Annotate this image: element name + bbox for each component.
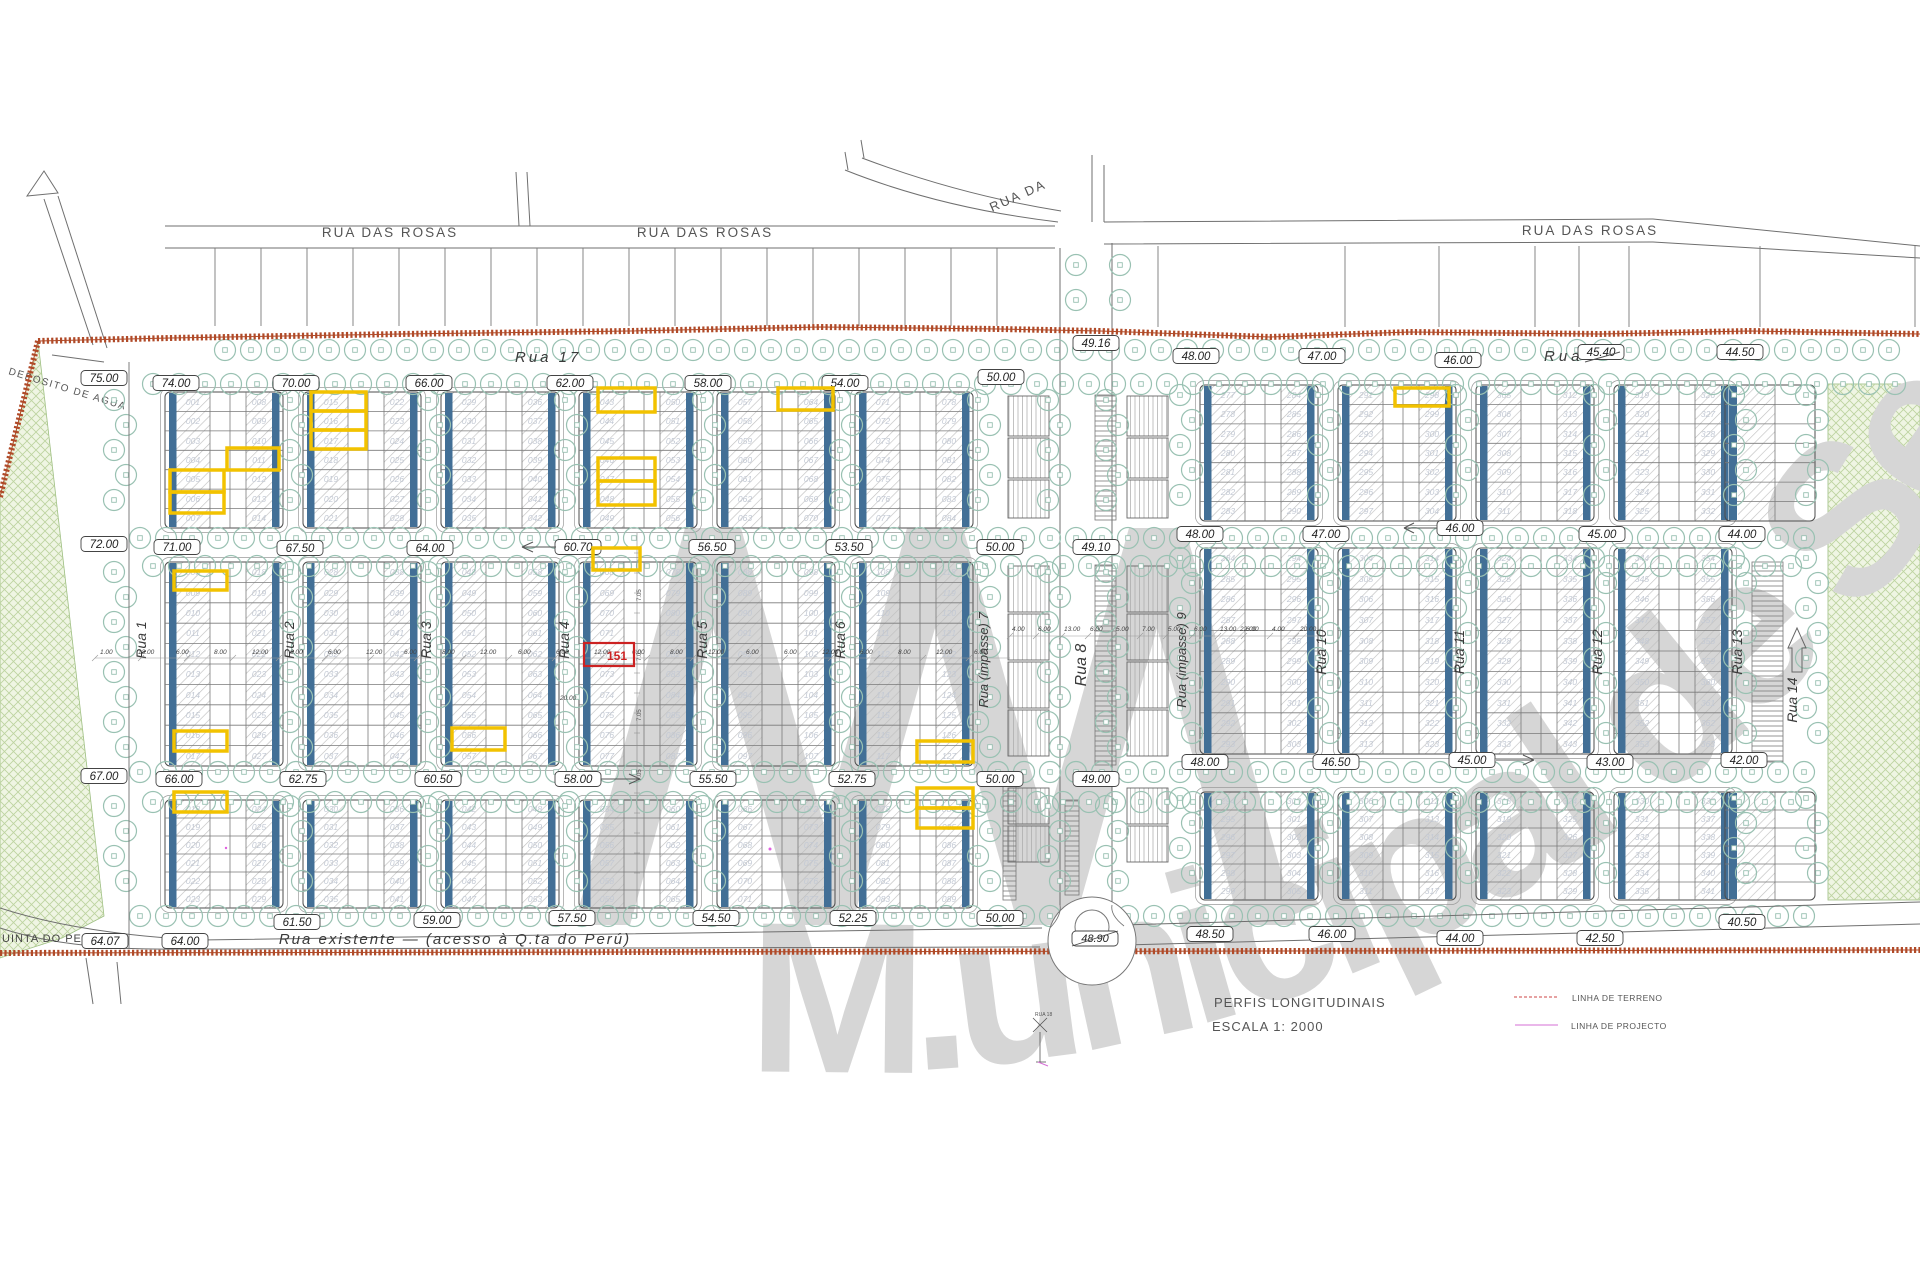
svg-text:111: 111 (877, 628, 890, 638)
svg-text:060: 060 (738, 455, 752, 465)
svg-text:46.50: 46.50 (1322, 757, 1351, 769)
svg-text:096: 096 (738, 730, 752, 740)
svg-text:049: 049 (600, 513, 614, 523)
svg-text:6.00: 6.00 (974, 649, 987, 656)
svg-text:313: 313 (1425, 814, 1439, 824)
svg-text:7.05: 7.05 (637, 769, 643, 781)
svg-text:030: 030 (324, 608, 338, 618)
svg-text:086: 086 (666, 730, 680, 740)
svg-text:RUA DAS ROSAS: RUA DAS ROSAS (637, 225, 773, 240)
svg-text:359: 359 (1701, 656, 1715, 666)
svg-text:286: 286 (1220, 594, 1235, 604)
svg-text:126: 126 (942, 730, 956, 740)
svg-text:323: 323 (1635, 467, 1649, 477)
svg-text:008: 008 (252, 397, 266, 407)
svg-text:329: 329 (1701, 448, 1715, 458)
svg-text:360: 360 (1701, 677, 1715, 687)
svg-text:59.00: 59.00 (423, 915, 452, 927)
svg-text:022: 022 (390, 397, 404, 407)
svg-text:Rua 3: Rua 3 (418, 621, 434, 659)
svg-text:290: 290 (1220, 677, 1235, 687)
svg-text:029: 029 (252, 894, 266, 904)
svg-text:350: 350 (1635, 677, 1649, 687)
svg-text:312: 312 (1359, 718, 1373, 728)
svg-text:294: 294 (1220, 796, 1235, 806)
svg-text:071: 071 (876, 397, 890, 407)
svg-text:329: 329 (1497, 656, 1511, 666)
svg-text:054: 054 (462, 690, 476, 700)
svg-text:303: 303 (1287, 850, 1301, 860)
svg-text:074: 074 (600, 690, 614, 700)
svg-text:321: 321 (1425, 698, 1439, 708)
svg-text:322: 322 (1497, 868, 1511, 878)
svg-text:045: 045 (600, 436, 614, 446)
svg-text:RUA DAS ROSAS: RUA DAS ROSAS (322, 225, 458, 240)
svg-text:53.50: 53.50 (835, 542, 864, 554)
svg-text:322: 322 (1425, 718, 1439, 728)
svg-text:332: 332 (1497, 718, 1511, 728)
svg-text:6.00: 6.00 (290, 649, 303, 656)
svg-text:045: 045 (390, 710, 404, 720)
svg-text:046: 046 (462, 876, 476, 886)
svg-text:317: 317 (1425, 886, 1439, 896)
svg-text:302: 302 (1287, 718, 1301, 728)
svg-text:103: 103 (804, 669, 818, 679)
svg-text:71.00: 71.00 (163, 542, 192, 554)
svg-text:8.00: 8.00 (898, 649, 911, 656)
svg-text:318: 318 (1563, 506, 1577, 516)
svg-text:LINHA DE PROJECTO: LINHA DE PROJECTO (1571, 1021, 1667, 1031)
svg-text:70.00: 70.00 (282, 378, 311, 390)
svg-text:039: 039 (390, 588, 404, 598)
svg-text:305: 305 (1287, 886, 1301, 896)
svg-text:292: 292 (1220, 718, 1235, 728)
svg-text:072: 072 (876, 416, 890, 426)
svg-text:025: 025 (252, 822, 266, 832)
svg-text:056: 056 (462, 730, 476, 740)
svg-text:4.00: 4.00 (1272, 626, 1285, 633)
svg-text:071: 071 (738, 894, 752, 904)
svg-text:062: 062 (666, 840, 680, 850)
svg-text:031: 031 (324, 628, 338, 638)
svg-text:081: 081 (876, 858, 890, 868)
svg-text:058: 058 (738, 416, 752, 426)
svg-text:48.00: 48.00 (1191, 757, 1220, 769)
svg-text:102: 102 (804, 649, 818, 659)
svg-text:003: 003 (186, 436, 200, 446)
svg-text:331: 331 (1635, 814, 1649, 824)
svg-text:335: 335 (1563, 574, 1577, 584)
svg-text:032: 032 (324, 840, 338, 850)
svg-text:338: 338 (1701, 832, 1715, 842)
svg-text:Rua 11: Rua 11 (1451, 630, 1467, 674)
svg-text:314: 314 (1563, 429, 1577, 439)
svg-text:093: 093 (738, 669, 752, 679)
svg-text:341: 341 (1563, 698, 1577, 708)
svg-text:006: 006 (186, 494, 200, 504)
svg-text:4.00: 4.00 (1012, 626, 1025, 633)
svg-text:8.00: 8.00 (670, 649, 683, 656)
svg-text:288: 288 (1220, 636, 1235, 646)
svg-text:048: 048 (600, 494, 614, 504)
svg-text:005: 005 (186, 474, 200, 484)
svg-text:123: 123 (942, 669, 956, 679)
svg-text:54.50: 54.50 (702, 913, 731, 925)
svg-text:035: 035 (324, 894, 338, 904)
svg-text:057: 057 (738, 397, 752, 407)
svg-text:033: 033 (324, 858, 338, 868)
svg-text:083: 083 (942, 494, 956, 504)
svg-text:75.00: 75.00 (90, 373, 119, 385)
svg-text:019: 019 (252, 588, 266, 598)
svg-text:44.00: 44.00 (1446, 933, 1475, 945)
svg-text:349: 349 (1635, 656, 1649, 666)
svg-text:055: 055 (666, 494, 680, 504)
svg-text:119: 119 (942, 588, 956, 598)
svg-text:ESCALA 1: 2000: ESCALA 1: 2000 (1212, 1019, 1324, 1034)
svg-text:303: 303 (1287, 739, 1301, 749)
svg-text:7.00: 7.00 (1142, 626, 1155, 633)
svg-text:015: 015 (324, 397, 338, 407)
svg-text:50.00: 50.00 (987, 372, 1016, 384)
svg-text:059: 059 (528, 588, 542, 598)
svg-text:083: 083 (666, 669, 680, 679)
svg-text:328: 328 (1701, 429, 1715, 439)
svg-text:047: 047 (390, 751, 404, 761)
svg-text:7.05: 7.05 (637, 649, 643, 661)
svg-text:069: 069 (738, 858, 752, 868)
svg-text:042: 042 (390, 649, 404, 659)
svg-text:076: 076 (804, 876, 818, 886)
svg-text:052: 052 (462, 649, 476, 659)
svg-text:308: 308 (1359, 832, 1373, 842)
svg-text:077: 077 (876, 513, 890, 523)
svg-text:309: 309 (1359, 850, 1373, 860)
svg-text:097: 097 (738, 751, 752, 761)
svg-text:12.00: 12.00 (708, 649, 725, 656)
svg-text:026: 026 (252, 730, 266, 740)
svg-text:041: 041 (528, 494, 542, 504)
svg-text:67.00: 67.00 (90, 771, 119, 783)
svg-text:327: 327 (1701, 409, 1715, 419)
svg-text:292: 292 (1358, 409, 1373, 419)
svg-text:056: 056 (666, 513, 680, 523)
svg-text:034: 034 (462, 494, 476, 504)
svg-text:50.00: 50.00 (986, 542, 1015, 554)
svg-text:038: 038 (528, 436, 542, 446)
svg-text:20.00: 20.00 (559, 695, 577, 702)
svg-text:120: 120 (942, 608, 956, 618)
svg-text:293: 293 (1358, 429, 1373, 439)
svg-text:6.00: 6.00 (784, 649, 797, 656)
svg-text:044: 044 (462, 840, 476, 850)
svg-text:068: 068 (804, 474, 818, 484)
svg-text:RUA 18: RUA 18 (1035, 1012, 1052, 1018)
svg-text:302: 302 (1425, 467, 1439, 477)
svg-text:044: 044 (600, 416, 614, 426)
svg-text:101: 101 (804, 628, 818, 638)
svg-text:1.00: 1.00 (100, 649, 113, 656)
svg-text:343: 343 (1563, 739, 1577, 749)
svg-text:RUA DAS ROSAS: RUA DAS ROSAS (1522, 223, 1658, 238)
svg-text:363: 363 (1701, 739, 1715, 749)
svg-text:297: 297 (1286, 615, 1301, 625)
svg-text:320: 320 (1497, 832, 1511, 842)
svg-text:080: 080 (942, 436, 956, 446)
svg-text:327: 327 (1563, 850, 1577, 860)
svg-text:070: 070 (738, 876, 752, 886)
svg-text:330: 330 (1701, 467, 1715, 477)
svg-text:063: 063 (528, 669, 542, 679)
svg-text:107: 107 (804, 751, 818, 761)
svg-text:299: 299 (1220, 886, 1235, 896)
svg-text:315: 315 (1425, 850, 1439, 860)
svg-text:040: 040 (390, 608, 404, 618)
svg-text:318: 318 (1425, 636, 1439, 646)
svg-text:Rua: Rua (1544, 348, 1584, 365)
svg-text:114: 114 (876, 690, 890, 700)
svg-text:009: 009 (252, 416, 266, 426)
svg-text:48.00: 48.00 (1182, 351, 1211, 363)
svg-text:082: 082 (876, 876, 890, 886)
svg-text:308: 308 (1359, 636, 1373, 646)
svg-text:295: 295 (1220, 814, 1235, 824)
svg-text:12.00: 12.00 (480, 649, 497, 656)
svg-text:022: 022 (186, 876, 200, 886)
svg-text:57.50: 57.50 (558, 913, 587, 925)
svg-text:012: 012 (252, 474, 266, 484)
svg-text:348: 348 (1635, 636, 1649, 646)
svg-text:332: 332 (1701, 506, 1715, 516)
svg-text:326: 326 (1563, 832, 1577, 842)
svg-text:307: 307 (1359, 814, 1373, 824)
svg-text:310: 310 (1497, 487, 1511, 497)
svg-text:44.00: 44.00 (1728, 529, 1757, 541)
svg-text:6.00: 6.00 (328, 649, 341, 656)
svg-text:296: 296 (1220, 832, 1235, 842)
svg-text:284: 284 (1286, 390, 1301, 400)
svg-text:065: 065 (804, 416, 818, 426)
svg-text:5.00: 5.00 (1116, 626, 1129, 633)
svg-text:317: 317 (1425, 615, 1439, 625)
svg-text:046: 046 (390, 730, 404, 740)
svg-text:071: 071 (600, 628, 614, 638)
svg-text:035: 035 (462, 513, 476, 523)
svg-text:357: 357 (1701, 615, 1715, 625)
svg-text:336: 336 (1563, 594, 1577, 604)
svg-text:047: 047 (462, 894, 476, 904)
svg-text:033: 033 (324, 669, 338, 679)
svg-text:64.07: 64.07 (91, 936, 120, 948)
svg-text:026: 026 (390, 474, 404, 484)
svg-text:12.00: 12.00 (252, 649, 269, 656)
svg-text:014: 014 (252, 513, 266, 523)
svg-text:345: 345 (1635, 574, 1649, 584)
svg-text:50.00: 50.00 (986, 913, 1015, 925)
svg-text:50.00: 50.00 (986, 774, 1015, 786)
svg-text:6.00: 6.00 (176, 649, 189, 656)
svg-text:6.00: 6.00 (404, 649, 417, 656)
svg-text:325: 325 (1635, 506, 1649, 516)
svg-text:043: 043 (390, 669, 404, 679)
svg-text:073: 073 (600, 669, 614, 679)
svg-text:300: 300 (1287, 677, 1301, 687)
svg-text:105: 105 (804, 710, 818, 720)
svg-text:094: 094 (738, 690, 752, 700)
svg-text:024: 024 (390, 436, 404, 446)
svg-text:026: 026 (252, 840, 266, 850)
svg-text:58.00: 58.00 (564, 774, 593, 786)
svg-text:025: 025 (252, 710, 266, 720)
svg-text:311: 311 (1359, 698, 1373, 708)
svg-text:331: 331 (1701, 487, 1715, 497)
svg-text:013: 013 (186, 669, 200, 679)
svg-text:46.00: 46.00 (1318, 929, 1347, 941)
svg-text:74.00: 74.00 (162, 378, 191, 390)
svg-text:341: 341 (1701, 886, 1715, 896)
svg-text:065: 065 (666, 894, 680, 904)
svg-text:285: 285 (1286, 409, 1301, 419)
svg-text:361: 361 (1701, 698, 1715, 708)
svg-text:314: 314 (1425, 553, 1439, 563)
svg-text:LINHA DE TERRENO: LINHA DE TERRENO (1572, 993, 1663, 1003)
svg-text:017: 017 (324, 436, 338, 446)
svg-text:304: 304 (1287, 868, 1301, 878)
svg-text:079: 079 (876, 822, 890, 832)
svg-text:028: 028 (252, 876, 266, 886)
svg-text:310: 310 (1359, 868, 1373, 878)
svg-text:127: 127 (942, 751, 956, 761)
svg-text:011: 011 (186, 628, 200, 638)
svg-text:297: 297 (1220, 850, 1235, 860)
svg-text:075: 075 (876, 474, 890, 484)
svg-text:279: 279 (1220, 429, 1235, 439)
svg-text:063: 063 (738, 513, 752, 523)
svg-text:277: 277 (1220, 390, 1235, 400)
svg-text:081: 081 (666, 628, 680, 638)
svg-text:084: 084 (666, 690, 680, 700)
svg-text:282: 282 (1220, 487, 1235, 497)
svg-text:067: 067 (528, 751, 542, 761)
svg-text:307: 307 (1497, 429, 1511, 439)
svg-text:310: 310 (1359, 677, 1373, 687)
svg-text:47.00: 47.00 (1308, 351, 1337, 363)
svg-text:Rua 12: Rua 12 (1589, 629, 1605, 674)
svg-text:Rua (impasse) 7: Rua (impasse) 7 (976, 612, 991, 708)
svg-text:334: 334 (1563, 553, 1577, 563)
svg-text:313: 313 (1563, 409, 1577, 419)
svg-text:313: 313 (1359, 739, 1373, 749)
svg-text:291: 291 (1358, 390, 1373, 400)
svg-text:334: 334 (1635, 868, 1649, 878)
svg-text:297: 297 (1358, 506, 1373, 516)
svg-text:067: 067 (738, 822, 752, 832)
svg-text:Rua 13: Rua 13 (1729, 629, 1745, 674)
svg-text:074: 074 (804, 840, 818, 850)
svg-text:5.00: 5.00 (1168, 626, 1181, 633)
svg-text:019: 019 (186, 822, 200, 832)
svg-text:089: 089 (942, 894, 956, 904)
svg-text:030: 030 (462, 416, 476, 426)
svg-text:041: 041 (390, 894, 404, 904)
svg-text:7.05: 7.05 (637, 589, 643, 601)
svg-text:052: 052 (666, 436, 680, 446)
svg-text:077: 077 (600, 751, 614, 761)
svg-text:037: 037 (324, 751, 338, 761)
svg-text:316: 316 (1425, 594, 1439, 604)
svg-text:46.00: 46.00 (1446, 523, 1475, 535)
svg-text:298: 298 (1220, 868, 1235, 878)
svg-text:054: 054 (666, 474, 680, 484)
svg-text:67.50: 67.50 (286, 543, 315, 555)
svg-text:028: 028 (390, 513, 404, 523)
svg-text:055: 055 (600, 822, 614, 832)
svg-text:018: 018 (324, 455, 338, 465)
svg-text:075: 075 (804, 858, 818, 868)
svg-text:104: 104 (804, 690, 818, 700)
svg-text:087: 087 (666, 751, 680, 761)
svg-text:088: 088 (942, 876, 956, 886)
svg-text:036: 036 (528, 397, 542, 407)
svg-text:074: 074 (876, 455, 890, 465)
svg-text:60.50: 60.50 (424, 774, 453, 786)
svg-text:347: 347 (1635, 615, 1649, 625)
svg-text:295: 295 (1358, 467, 1373, 477)
svg-text:332: 332 (1635, 832, 1649, 842)
svg-text:62.75: 62.75 (289, 774, 318, 786)
svg-text:42.50: 42.50 (1586, 933, 1615, 945)
svg-text:324: 324 (1563, 796, 1577, 806)
svg-text:283: 283 (1220, 506, 1235, 516)
svg-text:340: 340 (1701, 868, 1715, 878)
svg-text:54.00: 54.00 (831, 378, 860, 390)
svg-text:278: 278 (1220, 409, 1235, 419)
svg-text:084: 084 (942, 513, 956, 523)
svg-text:061: 061 (738, 474, 752, 484)
svg-text:281: 281 (1220, 467, 1235, 477)
svg-text:020: 020 (324, 494, 338, 504)
svg-text:027: 027 (252, 751, 266, 761)
svg-text:309: 309 (1359, 656, 1373, 666)
svg-text:Rua existente — (acesso à: Rua existente — (acesso à Q.ta do Perú) (279, 931, 631, 948)
svg-text:041: 041 (390, 628, 404, 638)
svg-text:6.00: 6.00 (1038, 626, 1051, 633)
svg-text:49.16: 49.16 (1082, 338, 1111, 350)
svg-text:6.00: 6.00 (518, 649, 531, 656)
svg-text:333: 333 (1635, 850, 1649, 860)
svg-text:116: 116 (876, 730, 890, 740)
svg-text:050: 050 (666, 397, 680, 407)
svg-text:321: 321 (1497, 850, 1511, 860)
svg-text:109: 109 (876, 588, 890, 598)
svg-text:329: 329 (1563, 886, 1577, 896)
svg-text:002: 002 (186, 416, 200, 426)
svg-text:317: 317 (1563, 487, 1577, 497)
svg-text:351: 351 (1635, 698, 1649, 708)
svg-text:010: 010 (186, 608, 200, 618)
svg-text:024: 024 (252, 690, 266, 700)
svg-text:069: 069 (600, 588, 614, 598)
svg-text:66.00: 66.00 (165, 774, 194, 786)
svg-text:316: 316 (1563, 467, 1577, 477)
svg-text:289: 289 (1220, 656, 1235, 666)
svg-text:059: 059 (600, 894, 614, 904)
svg-text:044: 044 (390, 690, 404, 700)
svg-text:056: 056 (600, 840, 614, 850)
svg-text:033: 033 (462, 474, 476, 484)
svg-text:6.00: 6.00 (746, 649, 759, 656)
svg-text:326: 326 (1497, 594, 1511, 604)
